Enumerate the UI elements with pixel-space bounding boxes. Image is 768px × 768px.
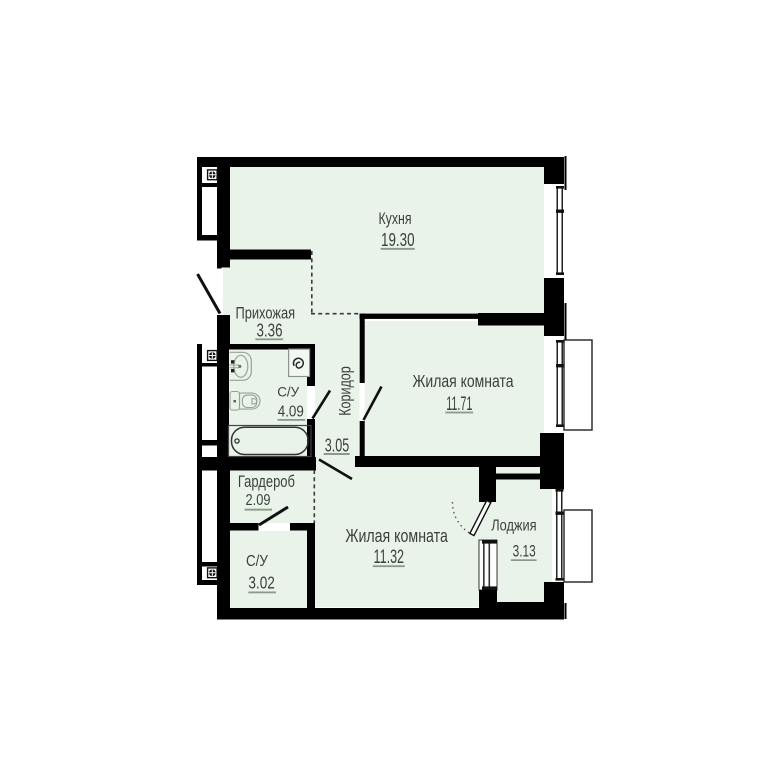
svg-text:Гардероб: Гардероб <box>238 472 295 491</box>
svg-text:Жилая комната: Жилая комната <box>413 371 514 391</box>
svg-text:Лоджия: Лоджия <box>491 518 536 535</box>
svg-text:Коридор: Коридор <box>335 366 354 416</box>
svg-text:Кухня: Кухня <box>379 209 412 228</box>
svg-text:3.36: 3.36 <box>257 321 283 341</box>
svg-text:3.05: 3.05 <box>325 434 350 455</box>
svg-text:2.09: 2.09 <box>246 492 271 509</box>
svg-text:Жилая комната: Жилая комната <box>345 526 448 546</box>
svg-text:С/У: С/У <box>246 553 269 570</box>
svg-text:4.09: 4.09 <box>278 404 304 421</box>
svg-text:19.30: 19.30 <box>381 230 415 250</box>
svg-text:3.13: 3.13 <box>513 542 536 560</box>
svg-text:С/У: С/У <box>277 383 299 399</box>
svg-text:11.32: 11.32 <box>374 546 405 568</box>
svg-text:3.02: 3.02 <box>248 572 275 592</box>
